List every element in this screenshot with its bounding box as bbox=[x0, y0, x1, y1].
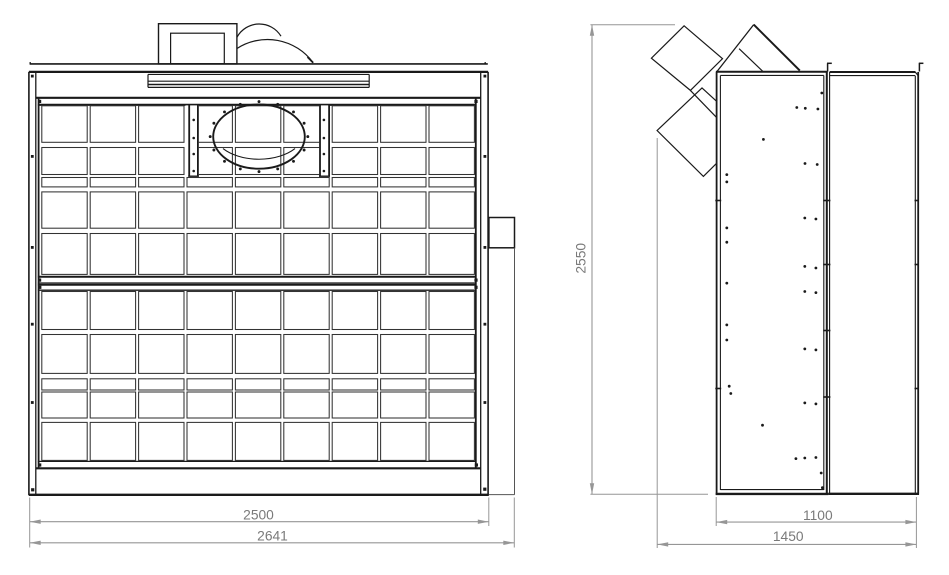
svg-text:2550: 2550 bbox=[574, 243, 589, 274]
svg-text:1100: 1100 bbox=[803, 508, 833, 523]
svg-text:1450: 1450 bbox=[773, 529, 804, 544]
svg-text:2500: 2500 bbox=[243, 508, 274, 523]
svg-text:2641: 2641 bbox=[257, 529, 288, 544]
